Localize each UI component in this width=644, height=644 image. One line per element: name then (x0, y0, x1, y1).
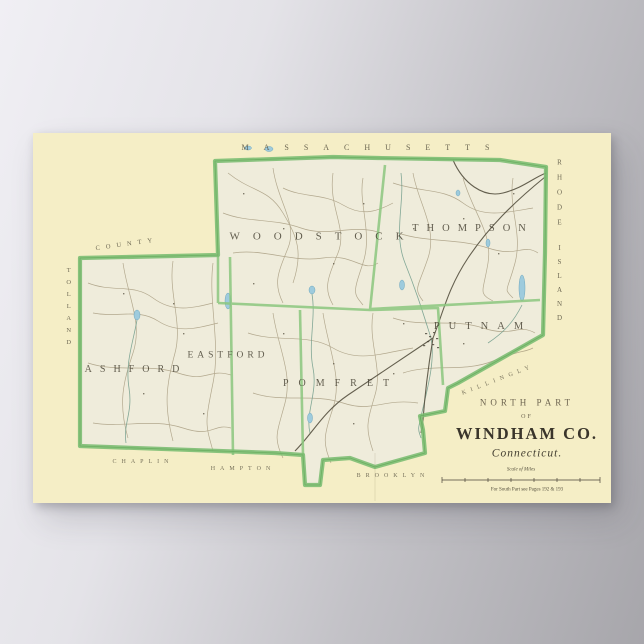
label-rhode: RHODE (556, 159, 563, 234)
label-town-putnam: PUTNAM (434, 322, 532, 333)
label-town-eastford: EASTFORD (187, 351, 268, 361)
label-town-thompson: THOMPSON (412, 224, 534, 235)
label-town-ashford: ASHFORD (85, 365, 188, 375)
scale-bar (442, 477, 600, 483)
title-part-line: NORTH PART (480, 399, 574, 408)
title-of-line: OF (521, 414, 533, 420)
title-footnote: For South Part see Pages 192 & 193 (491, 488, 563, 493)
label-town-woodstock: WOODSTOCK (229, 232, 416, 243)
scale-caption: Scale of Miles (507, 468, 535, 473)
map-poster: MASSACHUSETTS RHODE ISLAND TOLLAND COUNT… (33, 133, 611, 503)
label-massachusetts: MASSACHUSETTS (241, 144, 504, 152)
screenshot-root: { "poster": { "region_labels": { "north"… (0, 0, 644, 644)
label-brooklyn: BROOKLYN (357, 473, 430, 479)
label-hampton: HAMPTON (211, 466, 276, 472)
label-tolland: TOLLAND (65, 267, 72, 351)
title-state-name: Connecticut. (492, 448, 562, 460)
title-county-name: WINDHAM CO. (456, 426, 598, 443)
label-island: ISLAND (556, 244, 563, 328)
label-town-pomfret: POMFRET (283, 379, 399, 389)
label-chaplin: CHAPLIN (112, 459, 173, 465)
